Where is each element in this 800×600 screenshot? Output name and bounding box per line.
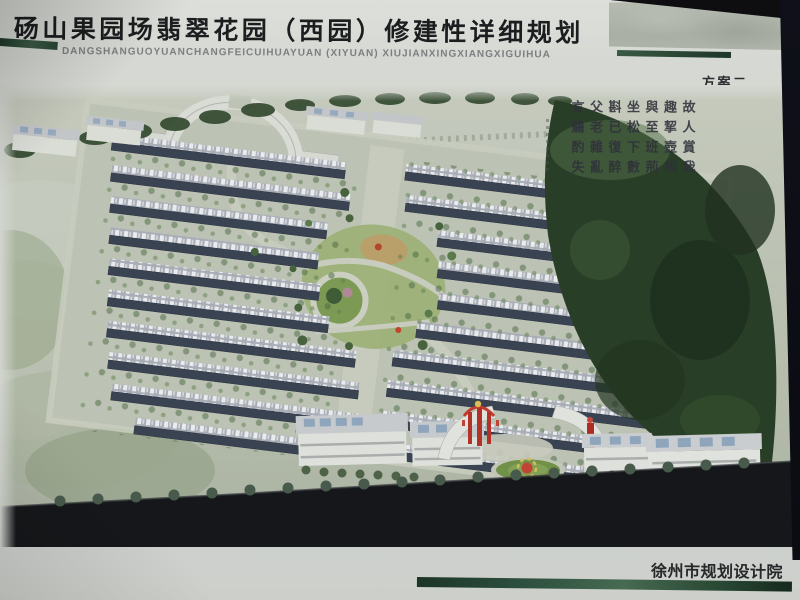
header-green-bar-right [617, 50, 731, 58]
plan-poster: 砀山果园场翡翠花园（西园）修建性详细规划 DANGSHANGUOYUANCHAN… [0, 0, 800, 600]
calligraphy-signature [546, 119, 549, 175]
commercial-building-1 [296, 413, 409, 466]
poster-title: 砀山果园场翡翠花园（西园）修建性详细规划 [14, 9, 584, 49]
institute-name: 徐州市规划设计院 [651, 557, 783, 582]
photo-frame: 砀山果园场翡翠花园（西园）修建性详细规划 DANGSHANGUOYUANCHAN… [0, 0, 800, 600]
calligraphy-poem: 故人賞我趣挈壺相與至班荊坐松下數斟已復醉父老雜亂言觴酌失 [566, 100, 696, 186]
poster-title-pinyin: DANGSHANGUOYUANCHANGFEICUIHUAYUAN (XIYUA… [62, 46, 551, 60]
render-top-fade [0, 85, 800, 101]
render-left-fade [0, 85, 16, 547]
